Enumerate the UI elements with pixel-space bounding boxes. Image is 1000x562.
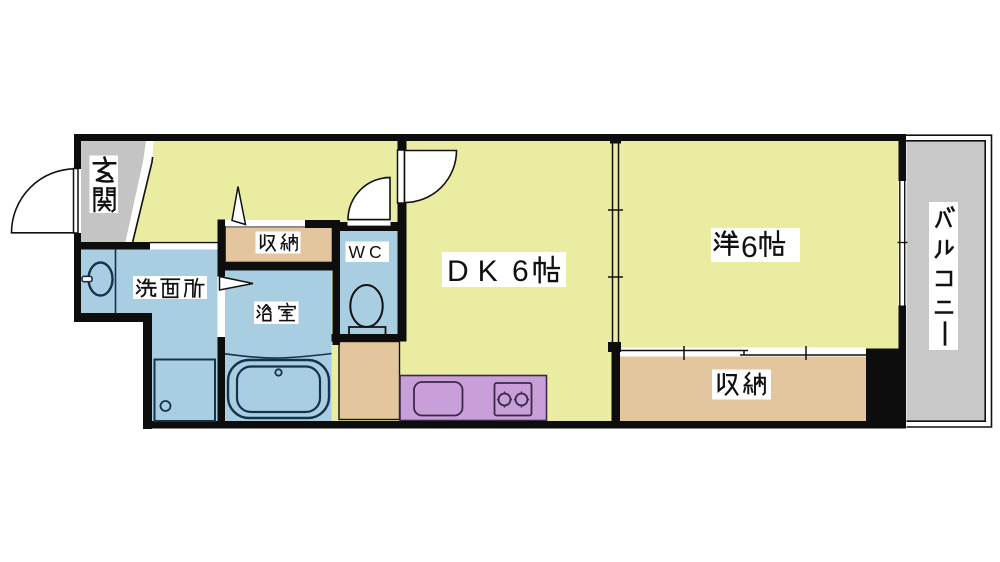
svg-text:DK: DK [447,255,507,288]
svg-text:6: 6 [741,231,758,264]
svg-text:6: 6 [512,255,529,288]
svg-text:WC: WC [349,242,386,262]
